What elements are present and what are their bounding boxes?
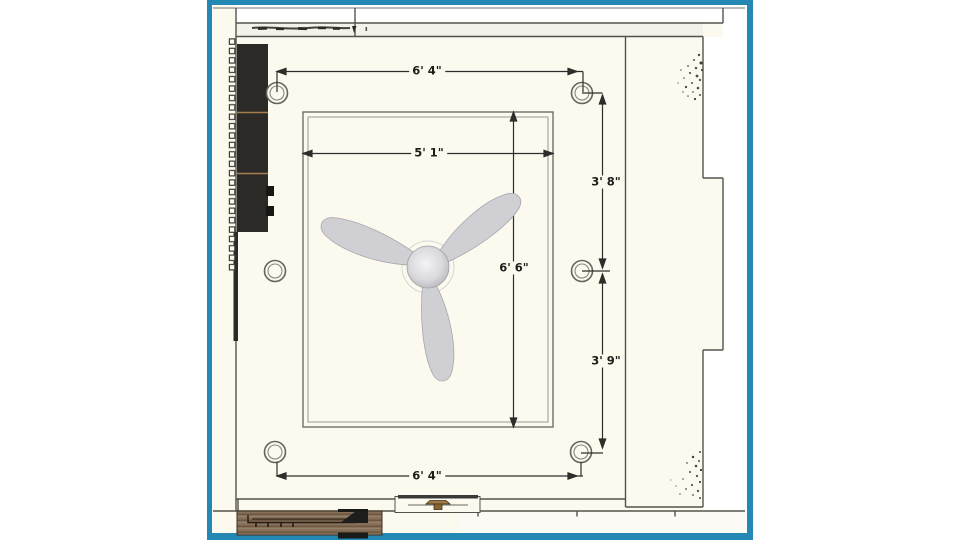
dimension-right-upper-label[interactable]: 3' 8" [588, 176, 624, 189]
plan-screenshot: 6' 4" 5' 1" 3' 8" 6' 6" 3' 9" 6' 4" [0, 0, 960, 540]
cabinet-hinge [266, 186, 274, 196]
wood-counter[interactable] [237, 509, 382, 539]
dimension-bottom-width-label[interactable]: 6' 4" [409, 470, 445, 483]
dimension-right-lower-label[interactable]: 3' 9" [588, 355, 624, 368]
counter-base-bar [338, 533, 368, 539]
paper-background [212, 5, 746, 533]
window-head-bar [398, 495, 478, 499]
recessed-light[interactable] [571, 442, 592, 463]
cabinet-hinge [266, 206, 274, 216]
dimension-inner-width-label[interactable]: 5' 1" [411, 147, 447, 160]
dimension-inner-height-label[interactable]: 6' 6" [496, 262, 532, 275]
dimension-top-width-label[interactable]: 6' 4" [409, 65, 445, 78]
fan-hub [407, 246, 449, 288]
bottom-window-table[interactable] [395, 495, 480, 513]
drawing-canvas[interactable] [0, 0, 960, 540]
recessed-light[interactable] [265, 442, 286, 463]
left-wall-teeth-strip [229, 38, 237, 273]
recessed-light[interactable] [265, 261, 286, 282]
counter-top-bar [338, 509, 368, 512]
